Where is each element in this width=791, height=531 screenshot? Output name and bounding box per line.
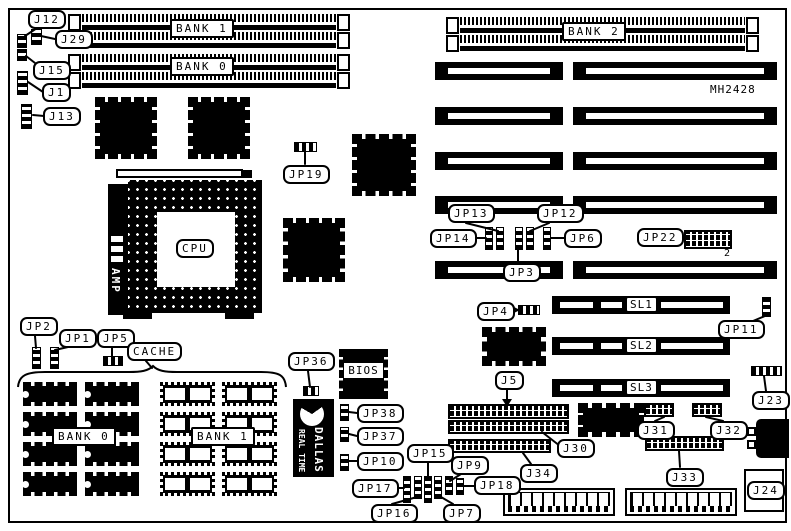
label-j15: J15 (33, 61, 71, 80)
label-jp17: JP17 (352, 479, 399, 498)
label-jp19: JP19 (283, 165, 330, 184)
label-jp36: JP36 (288, 352, 335, 371)
label-jp3: JP3 (503, 263, 541, 282)
label-jp18: JP18 (474, 476, 521, 495)
label-jp12: JP12 (537, 204, 584, 223)
label-j13: J13 (43, 107, 81, 126)
cache-label: CACHE (127, 342, 182, 361)
label-jp38: JP38 (357, 404, 404, 423)
label-j33: J33 (666, 468, 704, 487)
label-jp11: JP11 (718, 320, 765, 339)
label-jp9: JP9 (451, 456, 489, 475)
label-jp1: JP1 (59, 329, 97, 348)
label-jp7: JP7 (443, 504, 481, 523)
label-jp37: JP37 (357, 427, 404, 446)
label-jp2: JP2 (20, 317, 58, 336)
label-j31: J31 (637, 421, 675, 440)
label-jp15: JP15 (407, 444, 454, 463)
cpu-label: CPU (176, 239, 214, 258)
label-jp10: JP10 (357, 452, 404, 471)
label-jp14: JP14 (430, 229, 477, 248)
label-j24: J24 (747, 481, 785, 500)
motherboard-diagram: BANK 1 BANK 0 BANK 2 MH2428 SL1 SL2 SL3 … (0, 0, 791, 531)
label-j29: J29 (55, 30, 93, 49)
label-j34: J34 (520, 464, 558, 483)
label-jp4: JP4 (477, 302, 515, 321)
label-j12: J12 (28, 10, 66, 29)
cache-brace (18, 366, 286, 387)
label-jp13: JP13 (448, 204, 495, 223)
label-j32: J32 (710, 421, 748, 440)
label-j5: J5 (495, 371, 524, 390)
label-jp16: JP16 (371, 504, 418, 523)
label-j1: J1 (42, 83, 71, 102)
label-j23: J23 (752, 391, 790, 410)
label-j30: J30 (557, 439, 595, 458)
label-jp22: JP22 (637, 228, 684, 247)
label-jp6: JP6 (564, 229, 602, 248)
